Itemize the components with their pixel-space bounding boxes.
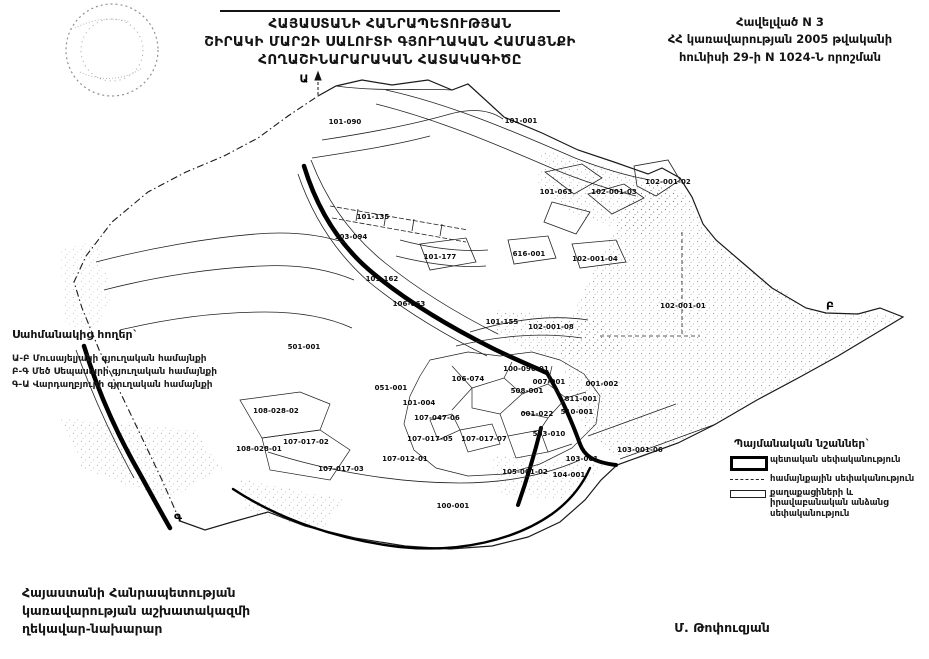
annex-line-2: ՀՀ կառավարության 2005 թվականի	[634, 31, 926, 48]
legend-row-community: համայնքային սեփականություն	[730, 474, 926, 485]
legend-row-state: պետական սեփականություն	[730, 455, 926, 471]
annex-line-1: Հավելված N 3	[634, 14, 926, 31]
document-title: ՀԱՅԱՍՏԱՆԻ ՀԱՆՐԱՊԵՏՈՒԹՅԱՆ ՇԻՐԱԿԻ ՄԱՐԶԻ ՍԱ…	[150, 10, 630, 70]
legend-label-community: համայնքային սեփականություն	[770, 474, 914, 485]
signature-name: Մ. Թոփուզյան	[652, 620, 792, 635]
north-arrow	[315, 72, 321, 95]
scanned-cadastral-map-page: 101-090101-001101-063102-001-03102-001-0…	[0, 0, 929, 659]
footer-line-2: կառավարության աշխատակազմի	[22, 602, 282, 620]
legend-row-citizens: քաղաքացիների և իրավաբանական անձանց սեփակ…	[730, 488, 926, 520]
title-line-2: ՇԻՐԱԿԻ ՄԱՐԶԻ ՍԱԼՈՒՏԻ ԳՅՈՒՂԱԿԱՆ ՀԱՄԱՅՆՔԻ	[150, 33, 630, 51]
annex-reference: Հավելված N 3 ՀՀ կառավարության 2005 թվակա…	[634, 14, 926, 66]
title-rule	[220, 10, 560, 12]
signatory-title-block: Հայաստանի Հանրապետության կառավարության ա…	[22, 584, 282, 638]
annex-line-3: հունիսի 29-ի N 1024-Ն որոշման	[634, 49, 926, 66]
community-property-symbol	[730, 475, 770, 480]
adjacent-lands-item-3: Գ-Ա Վարդաղբյուրի գյուղական համայնքի	[12, 379, 272, 392]
adjacent-lands-item-2: Բ-Գ Մեծ Սեպասարի գյուղական համայնքի	[12, 366, 272, 379]
state-property-symbol	[730, 456, 770, 471]
footer-line-3: ղեկավար-նախարար	[22, 620, 282, 638]
footer-line-1: Հայաստանի Հանրապետության	[22, 584, 282, 602]
adjacent-lands-item-1: Ա-Բ Մուսայելյանի գյուղական համայնքի	[12, 353, 272, 366]
legend-title: Պայմանական նշաններ`	[730, 438, 926, 450]
legend-label-citizens: քաղաքացիների և իրավաբանական անձանց սեփակ…	[770, 488, 926, 520]
adjacent-lands-title: Սահմանակից հողեր`	[12, 328, 272, 341]
legend-label-state: պետական սեփականություն	[770, 455, 901, 466]
stamp-seal	[66, 4, 158, 96]
title-line-1: ՀԱՅԱՍՏԱՆԻ ՀԱՆՐԱՊԵՏՈՒԹՅԱՆ	[150, 15, 630, 33]
citizens-property-symbol	[730, 489, 770, 498]
conventional-signs-legend: Պայմանական նշաններ` պետական սեփականությո…	[730, 438, 926, 523]
title-line-3: ՀՈՂԱՇԻՆԱՐԱՐԱԿԱՆ ՀԱՏԱԿԱԳԻԾԸ	[150, 51, 630, 69]
adjacent-lands-legend: Սահմանակից հողեր` Ա-Բ Մուսայելյանի գյուղ…	[12, 328, 272, 392]
